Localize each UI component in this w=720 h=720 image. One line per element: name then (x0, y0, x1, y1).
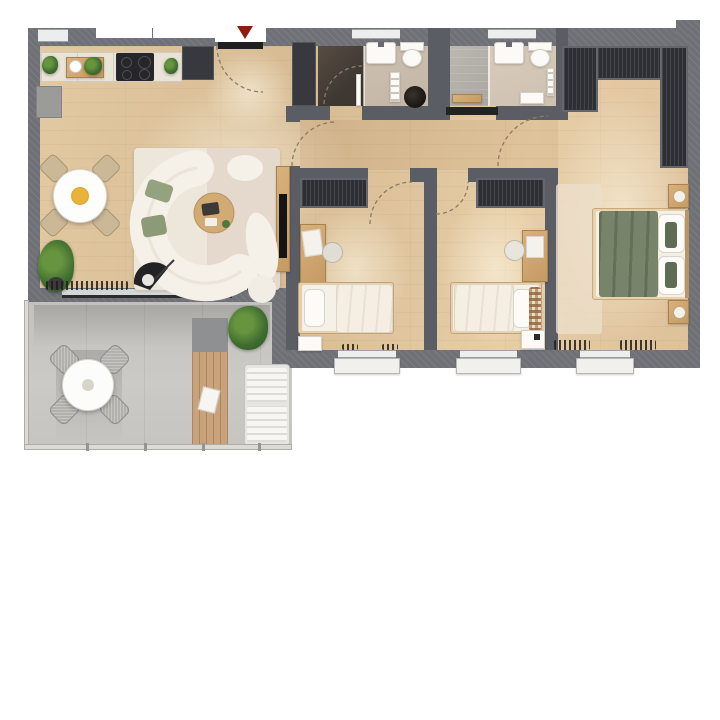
faucet (506, 42, 512, 47)
kitchen-plant (164, 58, 178, 74)
desk-chair (322, 242, 343, 263)
glass-railing-bottom (24, 444, 292, 450)
toilet-bowl (530, 49, 550, 67)
living-rug-shade (207, 148, 280, 290)
window-handle (382, 344, 398, 350)
bedroom-2-wardrobe (476, 178, 545, 208)
master-wardrobe-right (660, 46, 688, 168)
toilet-bowl (402, 49, 422, 67)
bedroom-2-nightstand (521, 330, 545, 349)
vegetables (84, 57, 102, 75)
master-window (580, 350, 630, 358)
bath-shelf (520, 92, 544, 104)
sun-lounger-cushion (247, 368, 287, 402)
nightstand-lamp (673, 190, 686, 203)
window-box-plants (46, 281, 128, 290)
desk-papers (301, 229, 323, 257)
entry-recess (153, 20, 215, 38)
green-accent-pillow (665, 262, 677, 288)
kitchen-plant (42, 56, 58, 74)
plaid-blanket (529, 287, 541, 331)
table-decor (82, 379, 94, 391)
railing-post (202, 443, 205, 451)
green-accent-pillow (665, 222, 677, 248)
entry-closet (292, 42, 316, 106)
bedroom-1-window (338, 350, 396, 358)
floor-decor-plants (554, 340, 590, 350)
wall-right (688, 28, 700, 368)
shower-glass (488, 40, 490, 106)
bedroom-1-duvet (336, 284, 393, 333)
kitchen-counter (40, 52, 182, 82)
master-headboard (685, 210, 689, 298)
burner (122, 70, 132, 80)
faucet (378, 42, 384, 47)
towel-rack (390, 72, 400, 102)
shower-bench (452, 94, 482, 103)
master-wardrobe-top (596, 46, 664, 80)
laundry-basket (404, 86, 426, 108)
railing-post (86, 443, 89, 451)
deck-mat (192, 318, 228, 352)
entry-door-leaf (218, 42, 263, 49)
bedroom-1-nightstand (298, 336, 322, 351)
entry-arrow-icon (237, 26, 253, 39)
floor-decor-plants (620, 340, 656, 350)
glass-railing-left (24, 300, 29, 450)
window-box-plants (232, 281, 276, 290)
bathroom-2-sliding-door (446, 107, 498, 115)
desk-laptop (526, 236, 544, 258)
master-wardrobe-left (562, 46, 598, 112)
bedroom-1-pillow (304, 289, 325, 327)
bowl (69, 60, 82, 73)
bedroom-2-window (460, 350, 517, 358)
shower-glass (363, 40, 365, 106)
burner (121, 57, 132, 68)
balcony-plant (228, 306, 268, 350)
wall-hall-north-1 (300, 106, 330, 120)
burner (139, 69, 150, 80)
bathroom-1-window (352, 29, 400, 39)
nightstand-item (534, 334, 540, 340)
bedroom-1-window-sill (334, 358, 400, 374)
burner (138, 56, 151, 69)
window-recess (96, 20, 152, 38)
hallway-floor (300, 120, 558, 170)
tv (279, 194, 287, 258)
bedroom-1-wardrobe (300, 178, 368, 208)
bathroom-1-door-leaf (356, 74, 361, 106)
kitchen-tall-unit (182, 46, 214, 80)
towel-rail (547, 68, 554, 96)
kitchen-window (38, 29, 68, 42)
window-handle (342, 344, 358, 350)
master-window-sill (576, 358, 634, 374)
sun-lounger-cushion (247, 406, 287, 442)
floor-plan-canvas (0, 0, 720, 720)
bathroom-2-window (488, 29, 536, 39)
master-green-duvet (599, 211, 658, 297)
wall-recess (96, 38, 152, 46)
low-cabinet (36, 86, 62, 118)
slider-frame (62, 295, 232, 298)
desk-chair (504, 240, 525, 261)
wall-living-hall-a (286, 106, 300, 122)
wall-hall-north-3 (496, 106, 558, 120)
railing-post (144, 443, 147, 451)
nightstand-lamp (673, 306, 686, 319)
railing-post (258, 443, 261, 451)
bedroom-2-duvet (454, 284, 514, 332)
wall-bedroom1-bedroom2 (424, 168, 437, 350)
wall-recess (153, 38, 215, 46)
bedroom-2-window-sill (456, 358, 521, 374)
food-bowl (71, 187, 89, 205)
